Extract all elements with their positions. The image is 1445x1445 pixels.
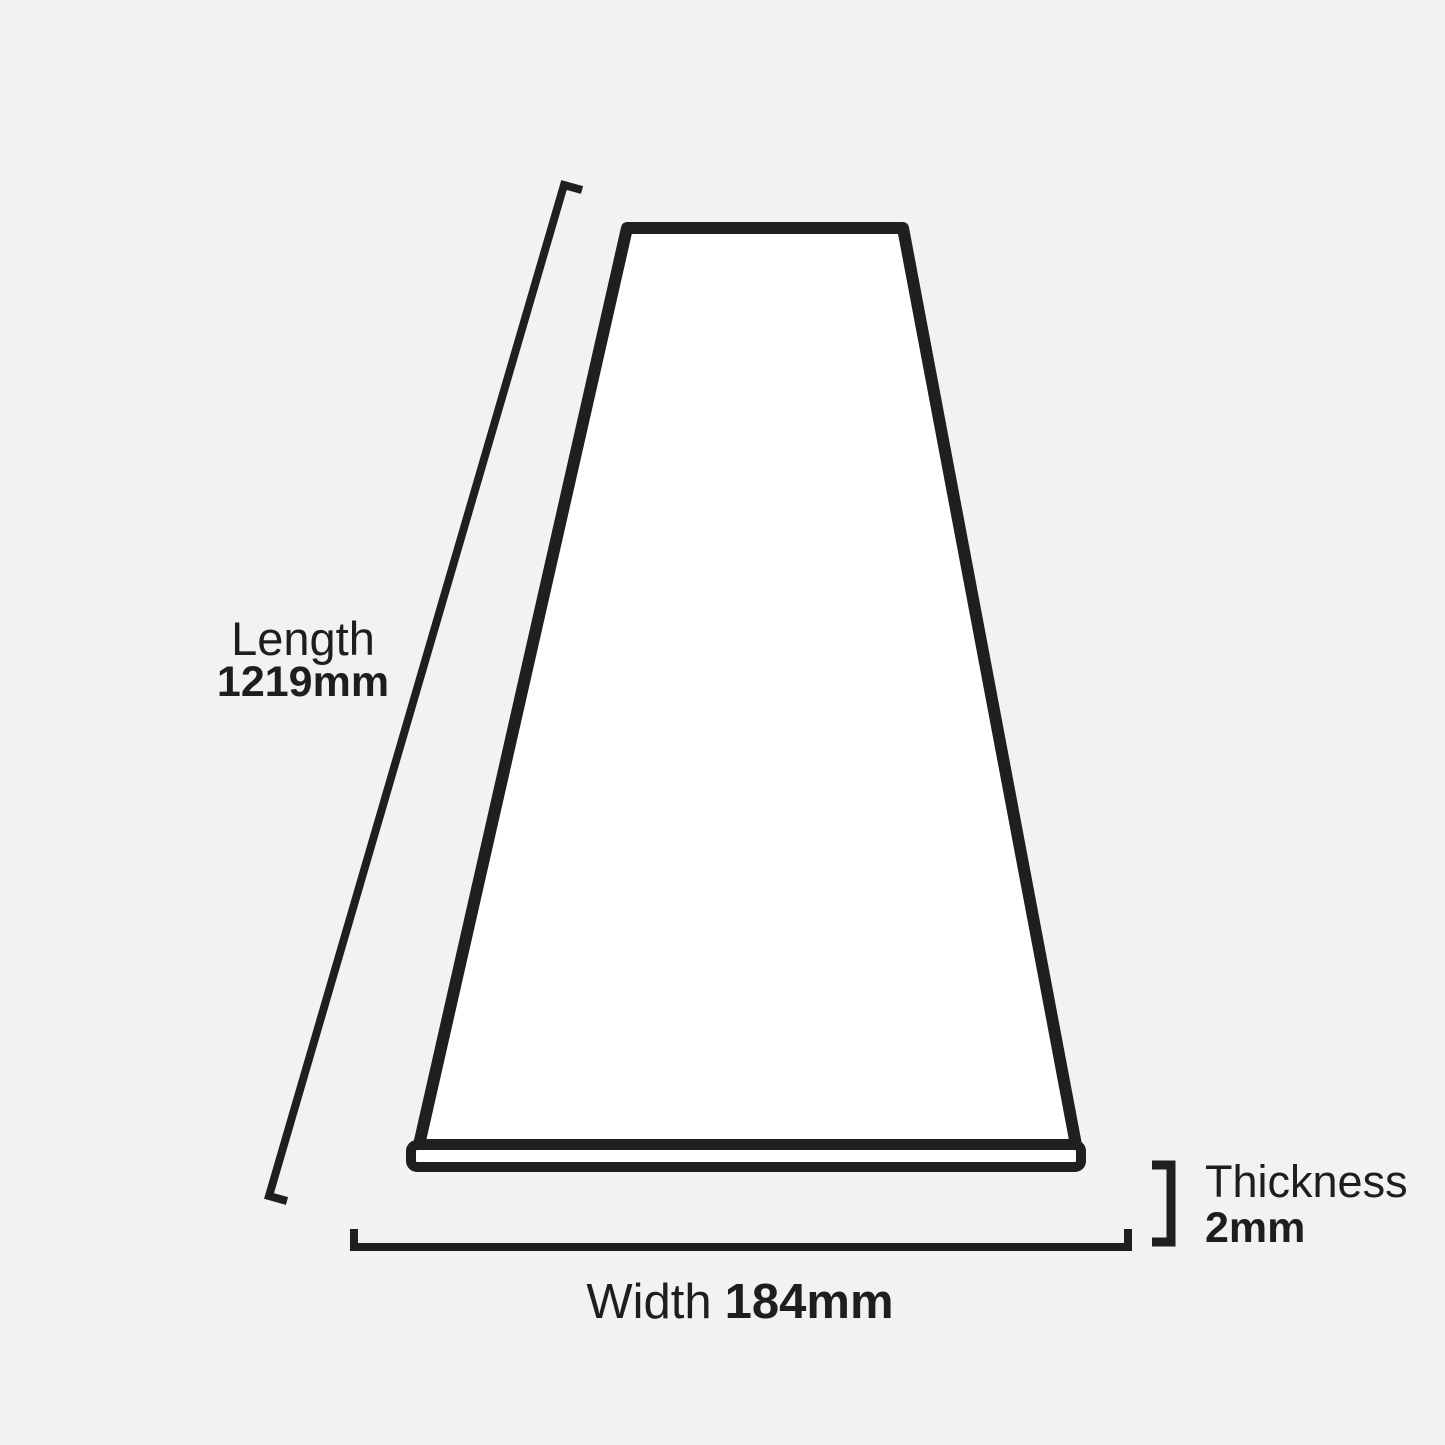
thickness-bracket — [1152, 1165, 1171, 1242]
width-annotation: Width184mm — [440, 1276, 1040, 1328]
plank-edge-strip — [411, 1145, 1081, 1167]
length-value: 1219mm — [103, 663, 503, 701]
length-label: Length — [103, 615, 503, 663]
product-dimension-diagram: Length 1219mm Width184mm Thickness 2mm — [0, 0, 1445, 1445]
plank-face — [419, 228, 1076, 1145]
thickness-value: 2mm — [1205, 1206, 1408, 1250]
length-annotation: Length 1219mm — [103, 615, 503, 701]
thickness-label: Thickness — [1205, 1158, 1408, 1206]
width-value: 184mm — [725, 1275, 894, 1329]
width-label: Width — [586, 1275, 711, 1329]
width-dimension-line — [354, 1229, 1128, 1247]
thickness-annotation: Thickness 2mm — [1205, 1158, 1408, 1250]
